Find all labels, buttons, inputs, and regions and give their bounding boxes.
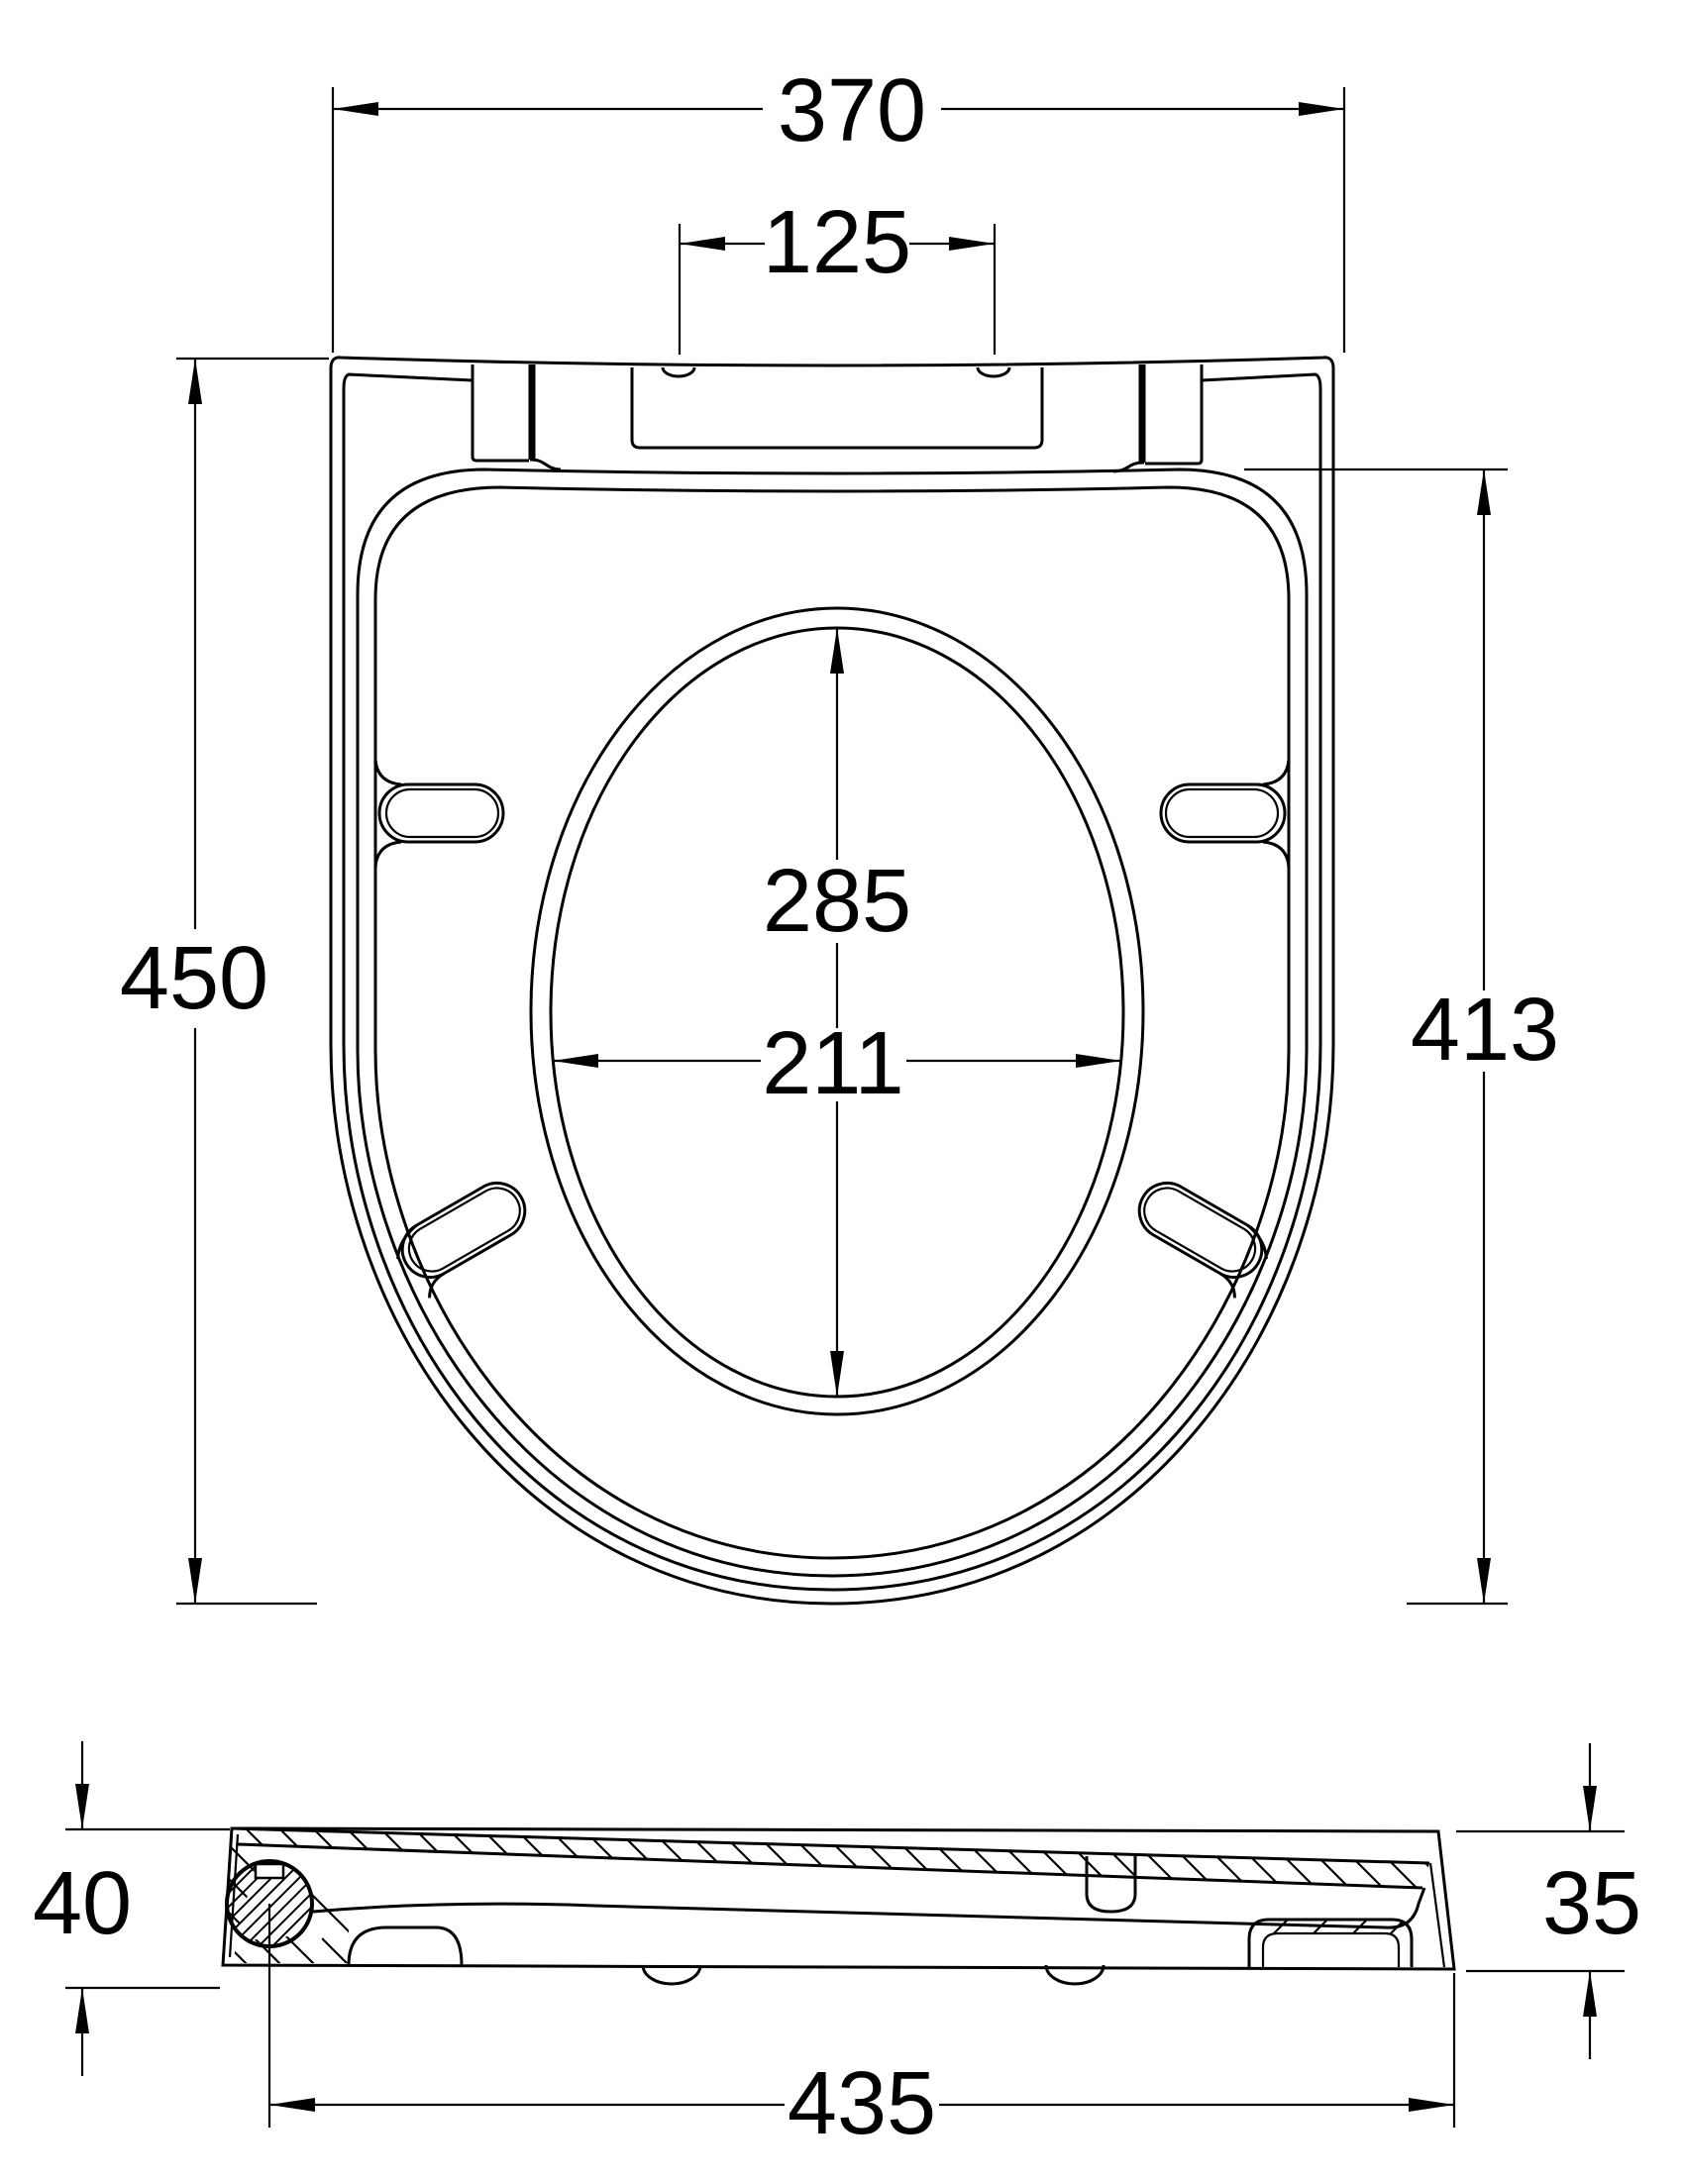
seat-inner-offset-outline <box>344 374 1320 1590</box>
dim-overall-length: 435 <box>269 1904 1454 2153</box>
dim-hinge-hole-spacing-label: 125 <box>763 193 911 292</box>
dim-overall-length-label: 435 <box>788 2054 936 2153</box>
arrow-left-icon <box>553 1054 598 1068</box>
hinge-hole-mark-left <box>663 367 694 376</box>
internal-boss-left <box>349 1927 462 1965</box>
dim-overall-depth: 450 <box>120 359 329 1604</box>
dim-depth-to-hinge: 413 <box>1244 469 1559 1604</box>
arrow-up-icon <box>1477 469 1491 515</box>
arrow-right-icon <box>1409 2098 1454 2112</box>
hinge-notch-left <box>530 460 561 469</box>
arrow-down-icon <box>1477 1558 1491 1604</box>
bumper-slot-lower-right <box>1122 1173 1276 1301</box>
dim-overall-depth-label: 450 <box>120 929 268 1028</box>
dim-cutout-length: 285 <box>763 628 911 1397</box>
arrow-down-icon <box>1583 1786 1597 1831</box>
arrow-left-icon <box>333 102 378 116</box>
bumper-slot-upper-left <box>375 760 503 867</box>
dim-overall-width-label: 370 <box>778 61 926 160</box>
arrow-up-icon <box>830 628 844 674</box>
dim-rear-thickness-label: 40 <box>33 1854 132 1953</box>
hinge-recess-rect <box>632 367 1042 448</box>
top-view: 370 125 450 413 <box>120 61 1559 1604</box>
side-view: 40 35 435 <box>33 1741 1641 2153</box>
dim-rear-thickness: 40 <box>33 1741 230 2076</box>
arrow-right-icon <box>1299 102 1344 116</box>
hinge-post-left <box>473 364 532 461</box>
dim-front-thickness-label: 35 <box>1542 1854 1641 1953</box>
dim-cutout-length-label: 285 <box>763 852 911 951</box>
dim-cutout-width: 211 <box>553 1014 1121 1113</box>
arrow-down-icon <box>830 1351 844 1397</box>
bumper-slot-lower-left <box>388 1173 542 1301</box>
arrow-right-icon <box>949 237 995 251</box>
arrow-up-icon <box>188 359 202 404</box>
seat-outer-outline <box>331 358 1333 1604</box>
dim-front-thickness: 35 <box>1456 1743 1641 2059</box>
arrow-down-icon <box>75 1784 89 1829</box>
dim-depth-to-hinge-label: 413 <box>1411 981 1559 1080</box>
arrow-down-icon <box>188 1558 202 1604</box>
bumper-slot-upper-right <box>1161 760 1289 867</box>
toilet-seat-drawing: 370 125 450 413 <box>0 0 1684 2179</box>
arrow-left-icon <box>269 2098 315 2112</box>
dim-cutout-width-label: 211 <box>762 1014 903 1113</box>
arrow-up-icon <box>1583 1971 1597 2017</box>
technical-drawing-page: 370 125 450 413 <box>0 0 1684 2179</box>
arrow-up-icon <box>75 1988 89 2033</box>
hinge-post-right <box>1142 364 1202 464</box>
arrow-left-icon <box>680 237 725 251</box>
hinge-hole-mark-right <box>978 367 1009 376</box>
arrow-right-icon <box>1076 1054 1121 1068</box>
dim-hinge-hole-spacing: 125 <box>680 193 995 355</box>
